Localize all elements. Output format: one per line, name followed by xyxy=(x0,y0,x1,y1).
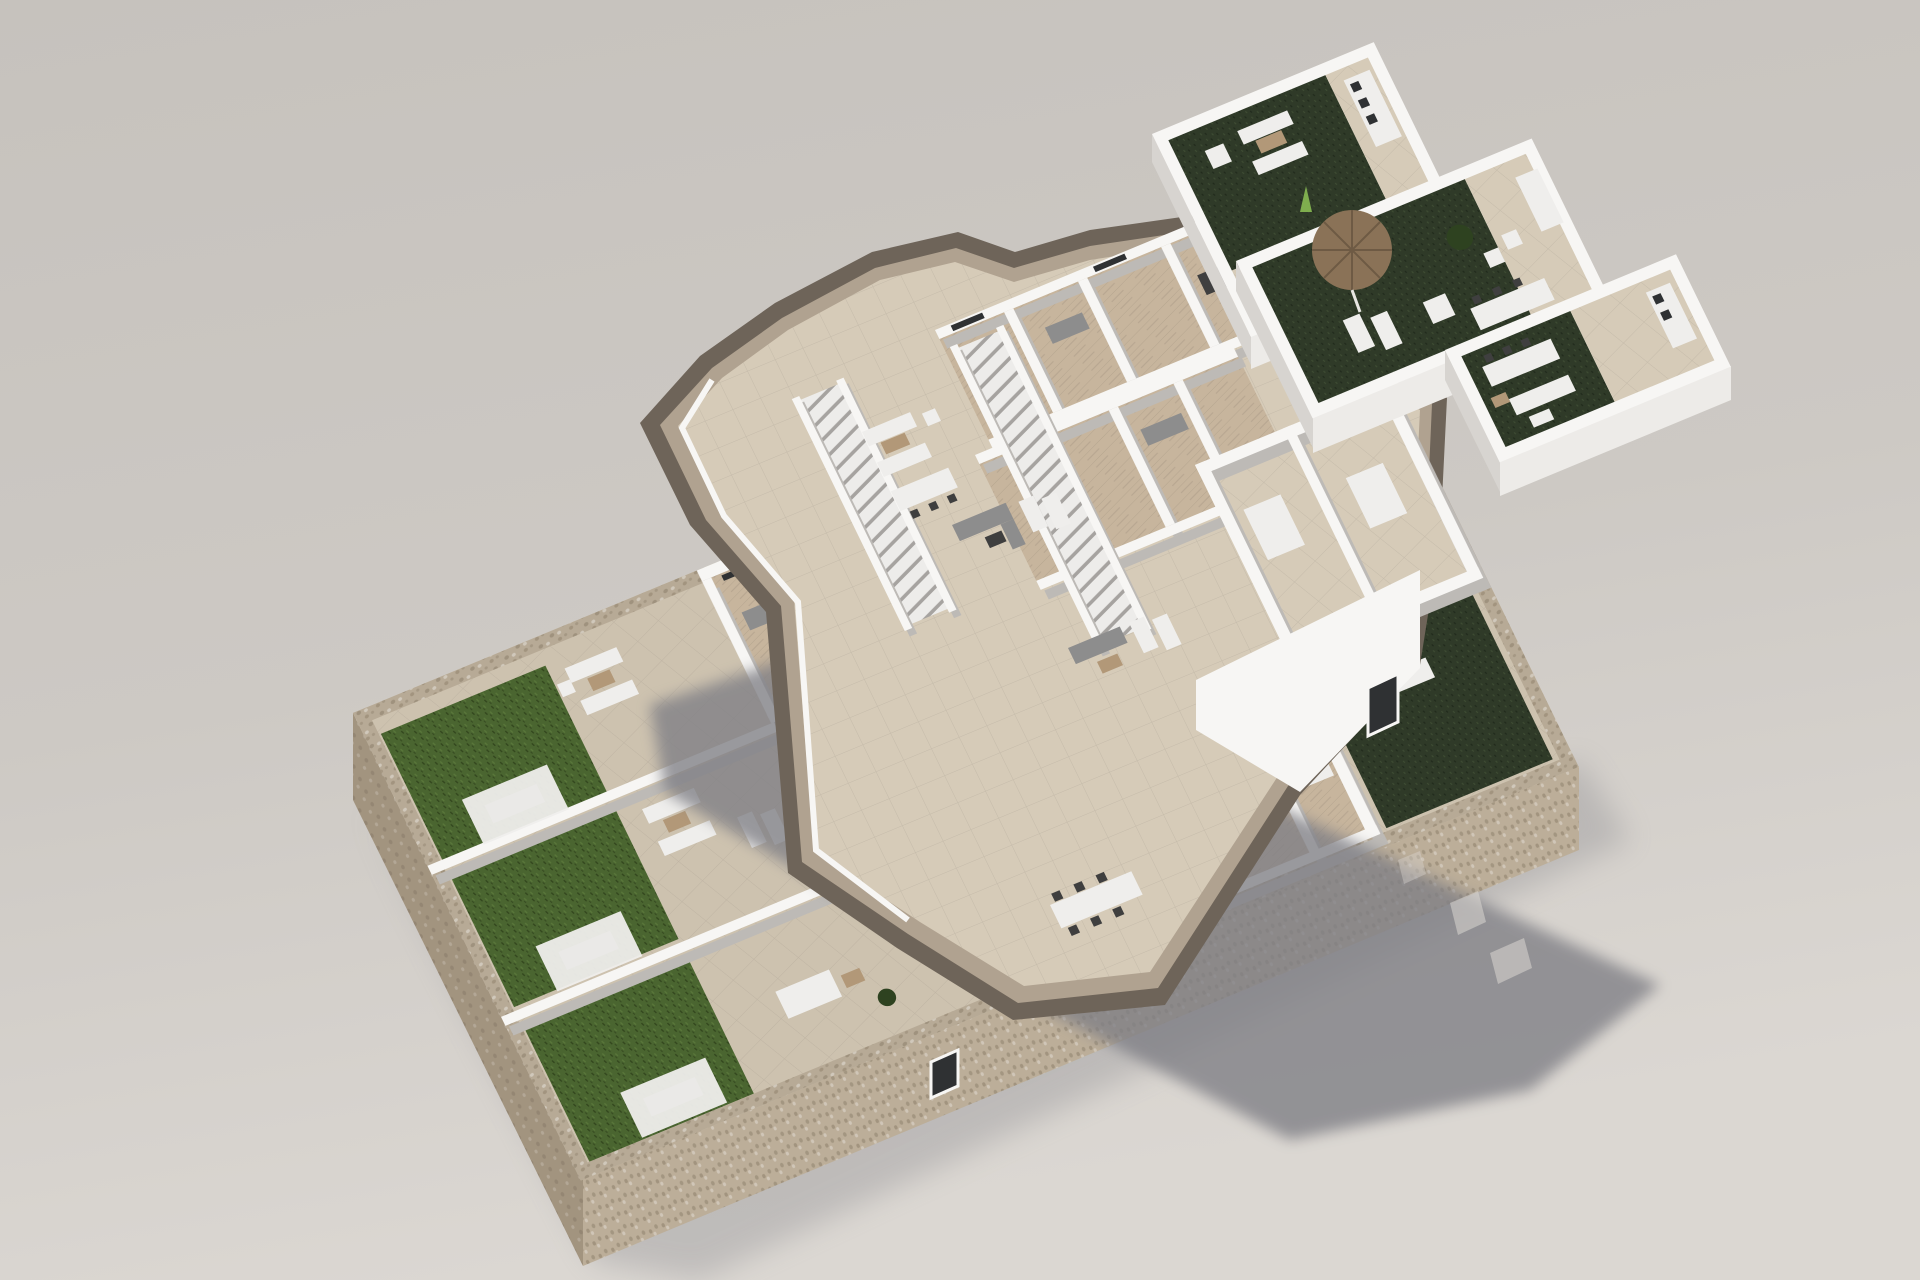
render-canvas xyxy=(0,0,1920,1280)
exploded-floorplan-scene xyxy=(0,0,1920,1280)
